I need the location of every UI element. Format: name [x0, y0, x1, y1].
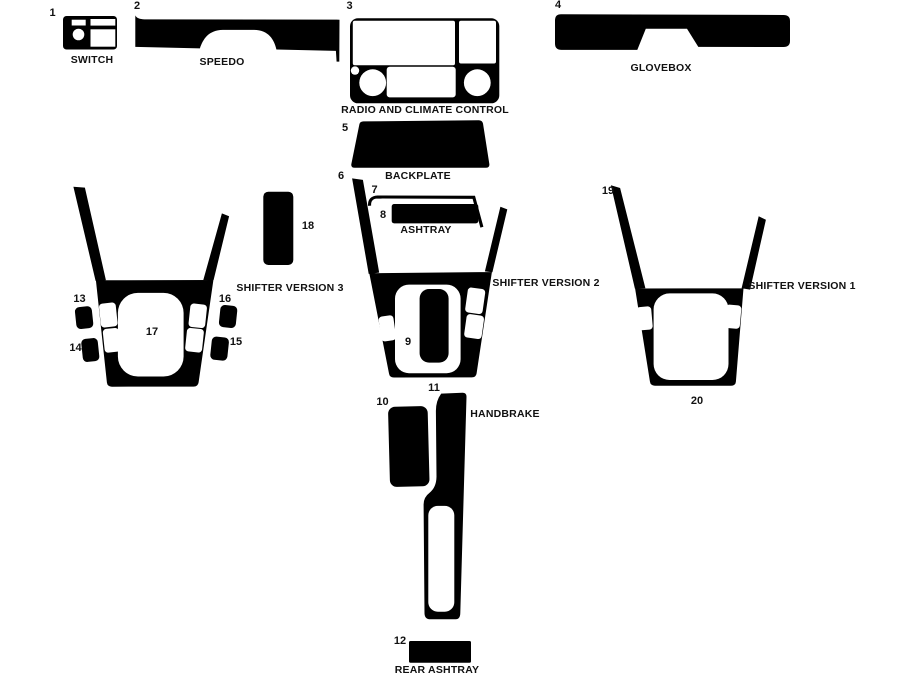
shifter-v1-cutout-left [636, 306, 653, 331]
switch-insert-16 [218, 305, 237, 329]
switch-cutout-top [91, 19, 116, 26]
trim-strip-18 [263, 192, 293, 265]
shifter-v1-cutout-main [654, 293, 729, 380]
part-19-shifter-v1-frame [611, 185, 766, 386]
switch-insert-14 [81, 338, 100, 363]
caption-ashtray: ASHTRAY [400, 224, 451, 236]
caption-radio: RADIO AND CLIMATE CONTROL [341, 104, 509, 116]
part-18-shape [263, 192, 293, 265]
part-12-rear-ashtray-shape [409, 641, 471, 663]
part-number-7: 7 [371, 184, 377, 196]
part-14-shape [81, 338, 100, 363]
part-number-14: 14 [69, 342, 81, 354]
part-8-ashtray-shape [392, 204, 479, 223]
switch-cutout-large [91, 29, 116, 46]
handbrake-cutout [428, 506, 454, 612]
part-number-16: 16 [219, 293, 231, 305]
part-number-20: 20 [691, 395, 703, 407]
switch-insert-13 [74, 306, 93, 330]
part-number-6: 6 [338, 170, 344, 182]
part-number-8: 8 [380, 209, 386, 221]
glovebox-panel [555, 14, 790, 50]
part-number-12: 12 [394, 635, 406, 647]
caption-handbrake: HANDBRAKE [470, 408, 539, 420]
caption-speedo: SPEEDO [200, 56, 245, 68]
part-16-shape [218, 305, 237, 329]
radio-cutout-vent [459, 21, 496, 64]
caption-switch: SWITCH [71, 54, 114, 66]
part-number-13: 13 [73, 293, 85, 305]
part-number-4: 4 [555, 0, 561, 11]
shifter-v3-cutout-right-lower [185, 328, 204, 353]
parts-canvas [0, 0, 900, 675]
part-number-18: 18 [302, 220, 314, 232]
shifter-v3-cutout-right-upper [188, 303, 207, 328]
part-13-shape [74, 306, 93, 330]
part-3-radio-shape [350, 18, 499, 103]
shifter-v3-cutout-left-lower [102, 328, 120, 353]
ashtray-panel [392, 204, 479, 223]
radio-cutout-display [353, 21, 455, 66]
radio-cutout-center [387, 67, 456, 98]
part-number-5: 5 [342, 122, 348, 134]
caption-shifter-version-2: SHIFTER VERSION 2 [492, 277, 599, 289]
part-15-shape [210, 336, 230, 361]
caption-glovebox: GLOVEBOX [630, 62, 691, 74]
part-number-15: 15 [230, 336, 242, 348]
caption-rear-ashtray: REAR ASHTRAY [395, 664, 479, 675]
part-9-shifter-slot [420, 289, 449, 363]
backplate-panel [351, 120, 489, 168]
part-number-9: 9 [405, 336, 411, 348]
switch-cutout-dial [73, 29, 85, 41]
shifter-v1-cutout-right [724, 304, 742, 329]
handbrake-side-panel [388, 406, 430, 487]
part-1-switch-shape [63, 16, 117, 50]
caption-shifter-version-1: SHIFTER VERSION 1 [748, 280, 855, 292]
switch-insert-15 [210, 336, 230, 361]
part-number-1: 1 [49, 7, 55, 19]
radio-cutout-small-knob [351, 66, 359, 74]
shifter-v2-cutout-right-upper [465, 287, 486, 314]
radio-cutout-right-knob [464, 69, 491, 96]
part-number-3: 3 [346, 0, 352, 12]
part-4-glovebox-shape [555, 14, 790, 50]
part-5-backplate-shape [351, 120, 489, 168]
part-11-handbrake-shape [424, 393, 467, 620]
part-number-19: 19 [602, 185, 614, 197]
part-number-10: 10 [376, 396, 388, 408]
part-number-17: 17 [146, 326, 158, 338]
caption-backplate: BACKPLATE [385, 170, 451, 182]
radio-cutout-left-knob [359, 69, 386, 96]
dash-kit-diagram: 1 2 3 4 5 6 7 8 9 10 11 12 13 14 15 16 1… [0, 0, 900, 675]
shifter-v3-cutout-left-upper [99, 302, 118, 328]
part-number-2: 2 [134, 0, 140, 12]
part-number-11: 11 [428, 382, 440, 394]
rear-ashtray-panel [409, 641, 471, 663]
shifter-v2-cutout-right-lower [464, 314, 485, 340]
switch-cutout-small [72, 20, 86, 26]
caption-shifter-version-3: SHIFTER VERSION 3 [236, 282, 343, 294]
part-10-shape [388, 406, 430, 487]
